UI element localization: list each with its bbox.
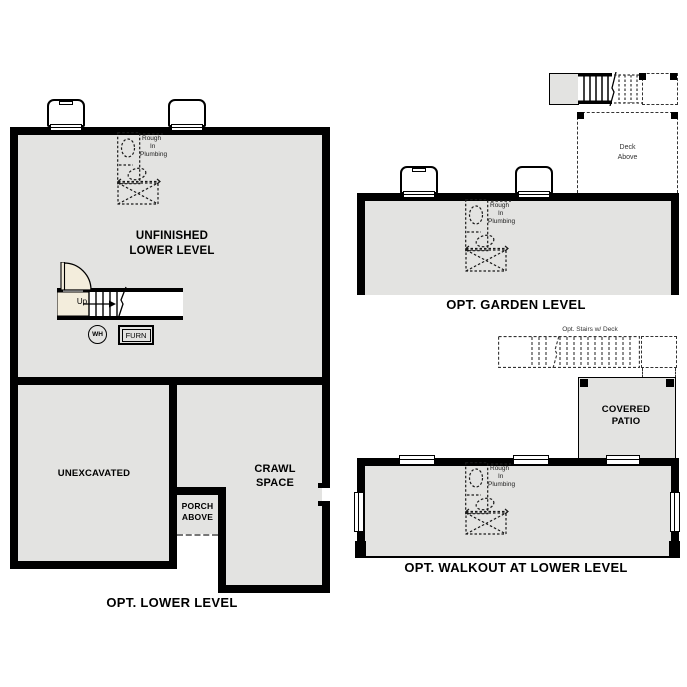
deck-stair-landing [549, 73, 579, 105]
porch-above-area: PORCH ABOVE [169, 487, 226, 593]
plumbing-label-line3: Plumbing [488, 218, 515, 225]
water-heater-symbol: WH [88, 325, 107, 344]
deck-post [577, 112, 584, 119]
egress-window [606, 455, 640, 465]
plumbing-label-line1: Rough [490, 465, 509, 472]
window-well [47, 99, 85, 127]
porch-above-label: PORCH ABOVE [177, 501, 218, 523]
covered-patio: COVERED PATIO [578, 377, 676, 459]
opt-stairs-deck-label: Opt. Stairs w/ Deck [535, 326, 645, 333]
wall-end-cap [669, 541, 680, 558]
plumbing-label-line3: Plumbing [140, 151, 167, 158]
side-window [354, 492, 364, 532]
wall-end-cap [355, 541, 366, 558]
deck-above-label: Deck Above [578, 113, 677, 163]
egress-window-sill [518, 191, 550, 198]
walkout-plan-title: OPT. WALKOUT AT LOWER LEVEL [370, 560, 662, 575]
rough-in-plumbing-symbol: Rough In Plumbing [117, 132, 165, 206]
deck-above-area: Deck Above [577, 112, 678, 193]
plumbing-label-line1: Rough [142, 135, 161, 142]
unfinished-room-label: UNFINISHED LOWER LEVEL [22, 229, 322, 259]
plumbing-label-line2: In [498, 473, 503, 480]
window-well [515, 166, 553, 194]
well-ladder-notch [59, 101, 73, 105]
deck-post [670, 73, 677, 80]
garden-level-room [357, 193, 679, 295]
rough-in-plumbing-symbol: Rough In Plumbing [465, 199, 513, 273]
stairs-to-main-level [57, 262, 183, 320]
plumbing-label-line2: In [498, 210, 503, 217]
plumbing-label-line1: Rough [490, 202, 509, 209]
rough-in-plumbing-symbol: Rough In Plumbing [465, 462, 513, 536]
plumbing-dashes [117, 132, 165, 206]
up-label: Up [70, 297, 94, 306]
wall-end-cap [318, 501, 330, 506]
wall-end-cap [318, 483, 330, 488]
egress-window-sill [403, 191, 435, 198]
egress-window [399, 455, 435, 465]
crawl-access-opening [322, 488, 330, 501]
lower-level-plan-title: OPT. LOWER LEVEL [60, 595, 284, 610]
unexcavated-label: UNEXCAVATED [18, 468, 170, 480]
covered-patio-label: COVERED PATIO [579, 404, 673, 429]
garden-level-plan-title: OPT. GARDEN LEVEL [380, 297, 652, 312]
plumbing-label-line2: In [150, 143, 155, 150]
egress-window-sill [50, 124, 82, 131]
patio-post [580, 379, 588, 387]
floorplan-sheet: Rough In Plumbing UNFINISHED LOWER LEVEL [0, 0, 687, 687]
door-swing [64, 263, 91, 290]
window-well [168, 99, 206, 127]
deck-post [639, 73, 646, 80]
side-window [670, 492, 680, 532]
door-leaf [61, 262, 65, 290]
egress-window [513, 455, 549, 465]
egress-window-sill [171, 124, 203, 131]
window-well [400, 166, 438, 194]
plumbing-label-line3: Plumbing [488, 481, 515, 488]
deck-post [671, 112, 678, 119]
deck-stairs-dashed [614, 73, 642, 105]
opt-stairs-landing-dashed [641, 336, 677, 368]
walkout-lower-level-room [357, 458, 679, 558]
well-ladder-notch [412, 168, 426, 172]
opt-stairs-dashed [498, 336, 640, 368]
patio-post [666, 379, 674, 387]
crawl-space-label: CRAWL SPACE [225, 462, 325, 491]
furnace-symbol: FURN [118, 325, 154, 345]
porch-dashed-edge [177, 534, 218, 536]
